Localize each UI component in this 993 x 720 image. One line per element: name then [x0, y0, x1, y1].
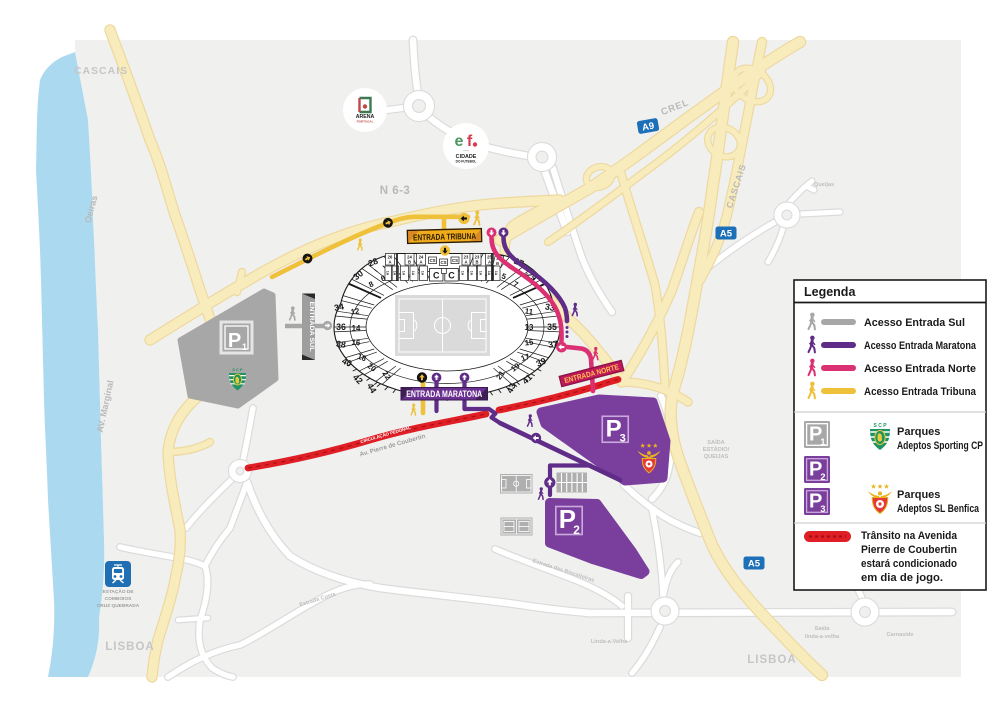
svg-text:DO FUTEBOL: DO FUTEBOL — [456, 160, 477, 164]
svg-text:Saída: Saída — [815, 626, 831, 632]
svg-text:Adeptos SL Benfica: Adeptos SL Benfica — [897, 503, 980, 515]
svg-text:1A: 1A — [461, 271, 465, 276]
svg-text:1A: 1A — [479, 271, 483, 276]
svg-text:ESTÁDIO/: ESTÁDIO/ — [703, 446, 730, 453]
svg-text:2: 2 — [820, 472, 825, 482]
svg-text:LISBOA: LISBOA — [747, 654, 796, 666]
svg-text:3: 3 — [620, 433, 626, 445]
svg-text:1A: 1A — [494, 271, 498, 276]
svg-text:CS: CS — [429, 258, 435, 263]
svg-text:34: 34 — [333, 301, 344, 313]
svg-text:A: A — [419, 259, 422, 264]
svg-text:A9: A9 — [641, 121, 655, 134]
svg-text:A5: A5 — [720, 229, 733, 240]
svg-text:C: C — [433, 271, 440, 281]
svg-text:Parques: Parques — [897, 426, 940, 438]
svg-text:36: 36 — [336, 322, 346, 332]
svg-text:Linda-a-Velha: Linda-a-Velha — [591, 639, 628, 645]
svg-text:em dia de jogo.: em dia de jogo. — [861, 572, 943, 584]
svg-text:Legenda: Legenda — [804, 285, 856, 299]
svg-text:A: A — [388, 259, 391, 264]
svg-text:P: P — [228, 330, 241, 352]
svg-text:S C P: S C P — [232, 367, 243, 372]
svg-text:A: A — [464, 259, 467, 264]
svg-text:38: 38 — [335, 339, 346, 350]
svg-text:Adeptos Sporting CP: Adeptos Sporting CP — [897, 440, 983, 452]
svg-text:Acesso Entrada Norte: Acesso Entrada Norte — [864, 363, 976, 375]
svg-text:ENTRADA TRIBUNA: ENTRADA TRIBUNA — [413, 231, 476, 243]
svg-text:QUEIJAS: QUEIJAS — [704, 454, 729, 460]
svg-text:3: 3 — [820, 504, 825, 514]
svg-text:1A: 1A — [385, 271, 389, 276]
svg-text:f: f — [467, 133, 473, 150]
svg-text:35: 35 — [547, 322, 557, 332]
svg-text:Acesso Entrada Tribuna: Acesso Entrada Tribuna — [864, 386, 977, 398]
svg-text:CRUZ QUEBRADA: CRUZ QUEBRADA — [97, 603, 140, 609]
svg-text:13: 13 — [525, 323, 534, 332]
svg-text:CASCAIS: CASCAIS — [74, 65, 128, 77]
svg-text:A: A — [488, 259, 491, 264]
svg-text:15: 15 — [524, 338, 534, 348]
svg-text:A5: A5 — [748, 559, 761, 570]
svg-text:1: 1 — [242, 342, 247, 352]
svg-text:1A: 1A — [487, 271, 491, 276]
svg-text:B: B — [475, 259, 478, 264]
svg-text:C: C — [448, 271, 455, 281]
svg-text:Trânsito na Avenida: Trânsito na Avenida — [861, 530, 958, 542]
svg-text:ENTRADA MARATONA: ENTRADA MARATONA — [406, 389, 483, 399]
svg-text:CS: CS — [452, 258, 458, 263]
svg-text:2: 2 — [573, 523, 580, 537]
svg-text:B: B — [408, 259, 411, 264]
svg-text:linda-a-velha: linda-a-velha — [805, 634, 840, 640]
svg-text:* * *: * * * — [463, 149, 469, 153]
svg-text:S C P: S C P — [873, 423, 887, 429]
svg-text:estará condicionado: estará condicionado — [861, 558, 957, 570]
svg-text:16: 16 — [351, 338, 361, 348]
svg-text:Parques: Parques — [897, 489, 940, 501]
svg-text:Pierre de Coubertin: Pierre de Coubertin — [861, 544, 957, 556]
svg-text:14: 14 — [352, 324, 361, 333]
svg-text:LISBOA: LISBOA — [105, 641, 154, 653]
svg-text:1A: 1A — [392, 271, 396, 276]
svg-text:SAÍDA: SAÍDA — [707, 438, 724, 446]
svg-text:ESTAÇÃO DE: ESTAÇÃO DE — [102, 588, 134, 595]
svg-text:Queijas: Queijas — [814, 182, 834, 188]
svg-text:Acesso Entrada Maratona: Acesso Entrada Maratona — [864, 340, 977, 352]
svg-text:N 6-3: N 6-3 — [380, 185, 411, 197]
svg-text:1A: 1A — [470, 271, 474, 276]
svg-text:1A: 1A — [411, 271, 415, 276]
svg-text:ENTRADA SUL: ENTRADA SUL — [308, 302, 315, 352]
svg-text:Carnaxide: Carnaxide — [886, 632, 913, 638]
svg-text:1A: 1A — [421, 271, 425, 276]
svg-text:1A: 1A — [402, 271, 406, 276]
svg-text:CS: CS — [440, 260, 446, 265]
svg-text:PORTUGAL: PORTUGAL — [357, 120, 374, 124]
svg-text:e: e — [455, 133, 464, 150]
svg-text:COMBOIOS: COMBOIOS — [105, 596, 132, 602]
svg-text:Acesso Entrada Sul: Acesso Entrada Sul — [864, 317, 965, 329]
svg-text:1: 1 — [820, 437, 825, 447]
